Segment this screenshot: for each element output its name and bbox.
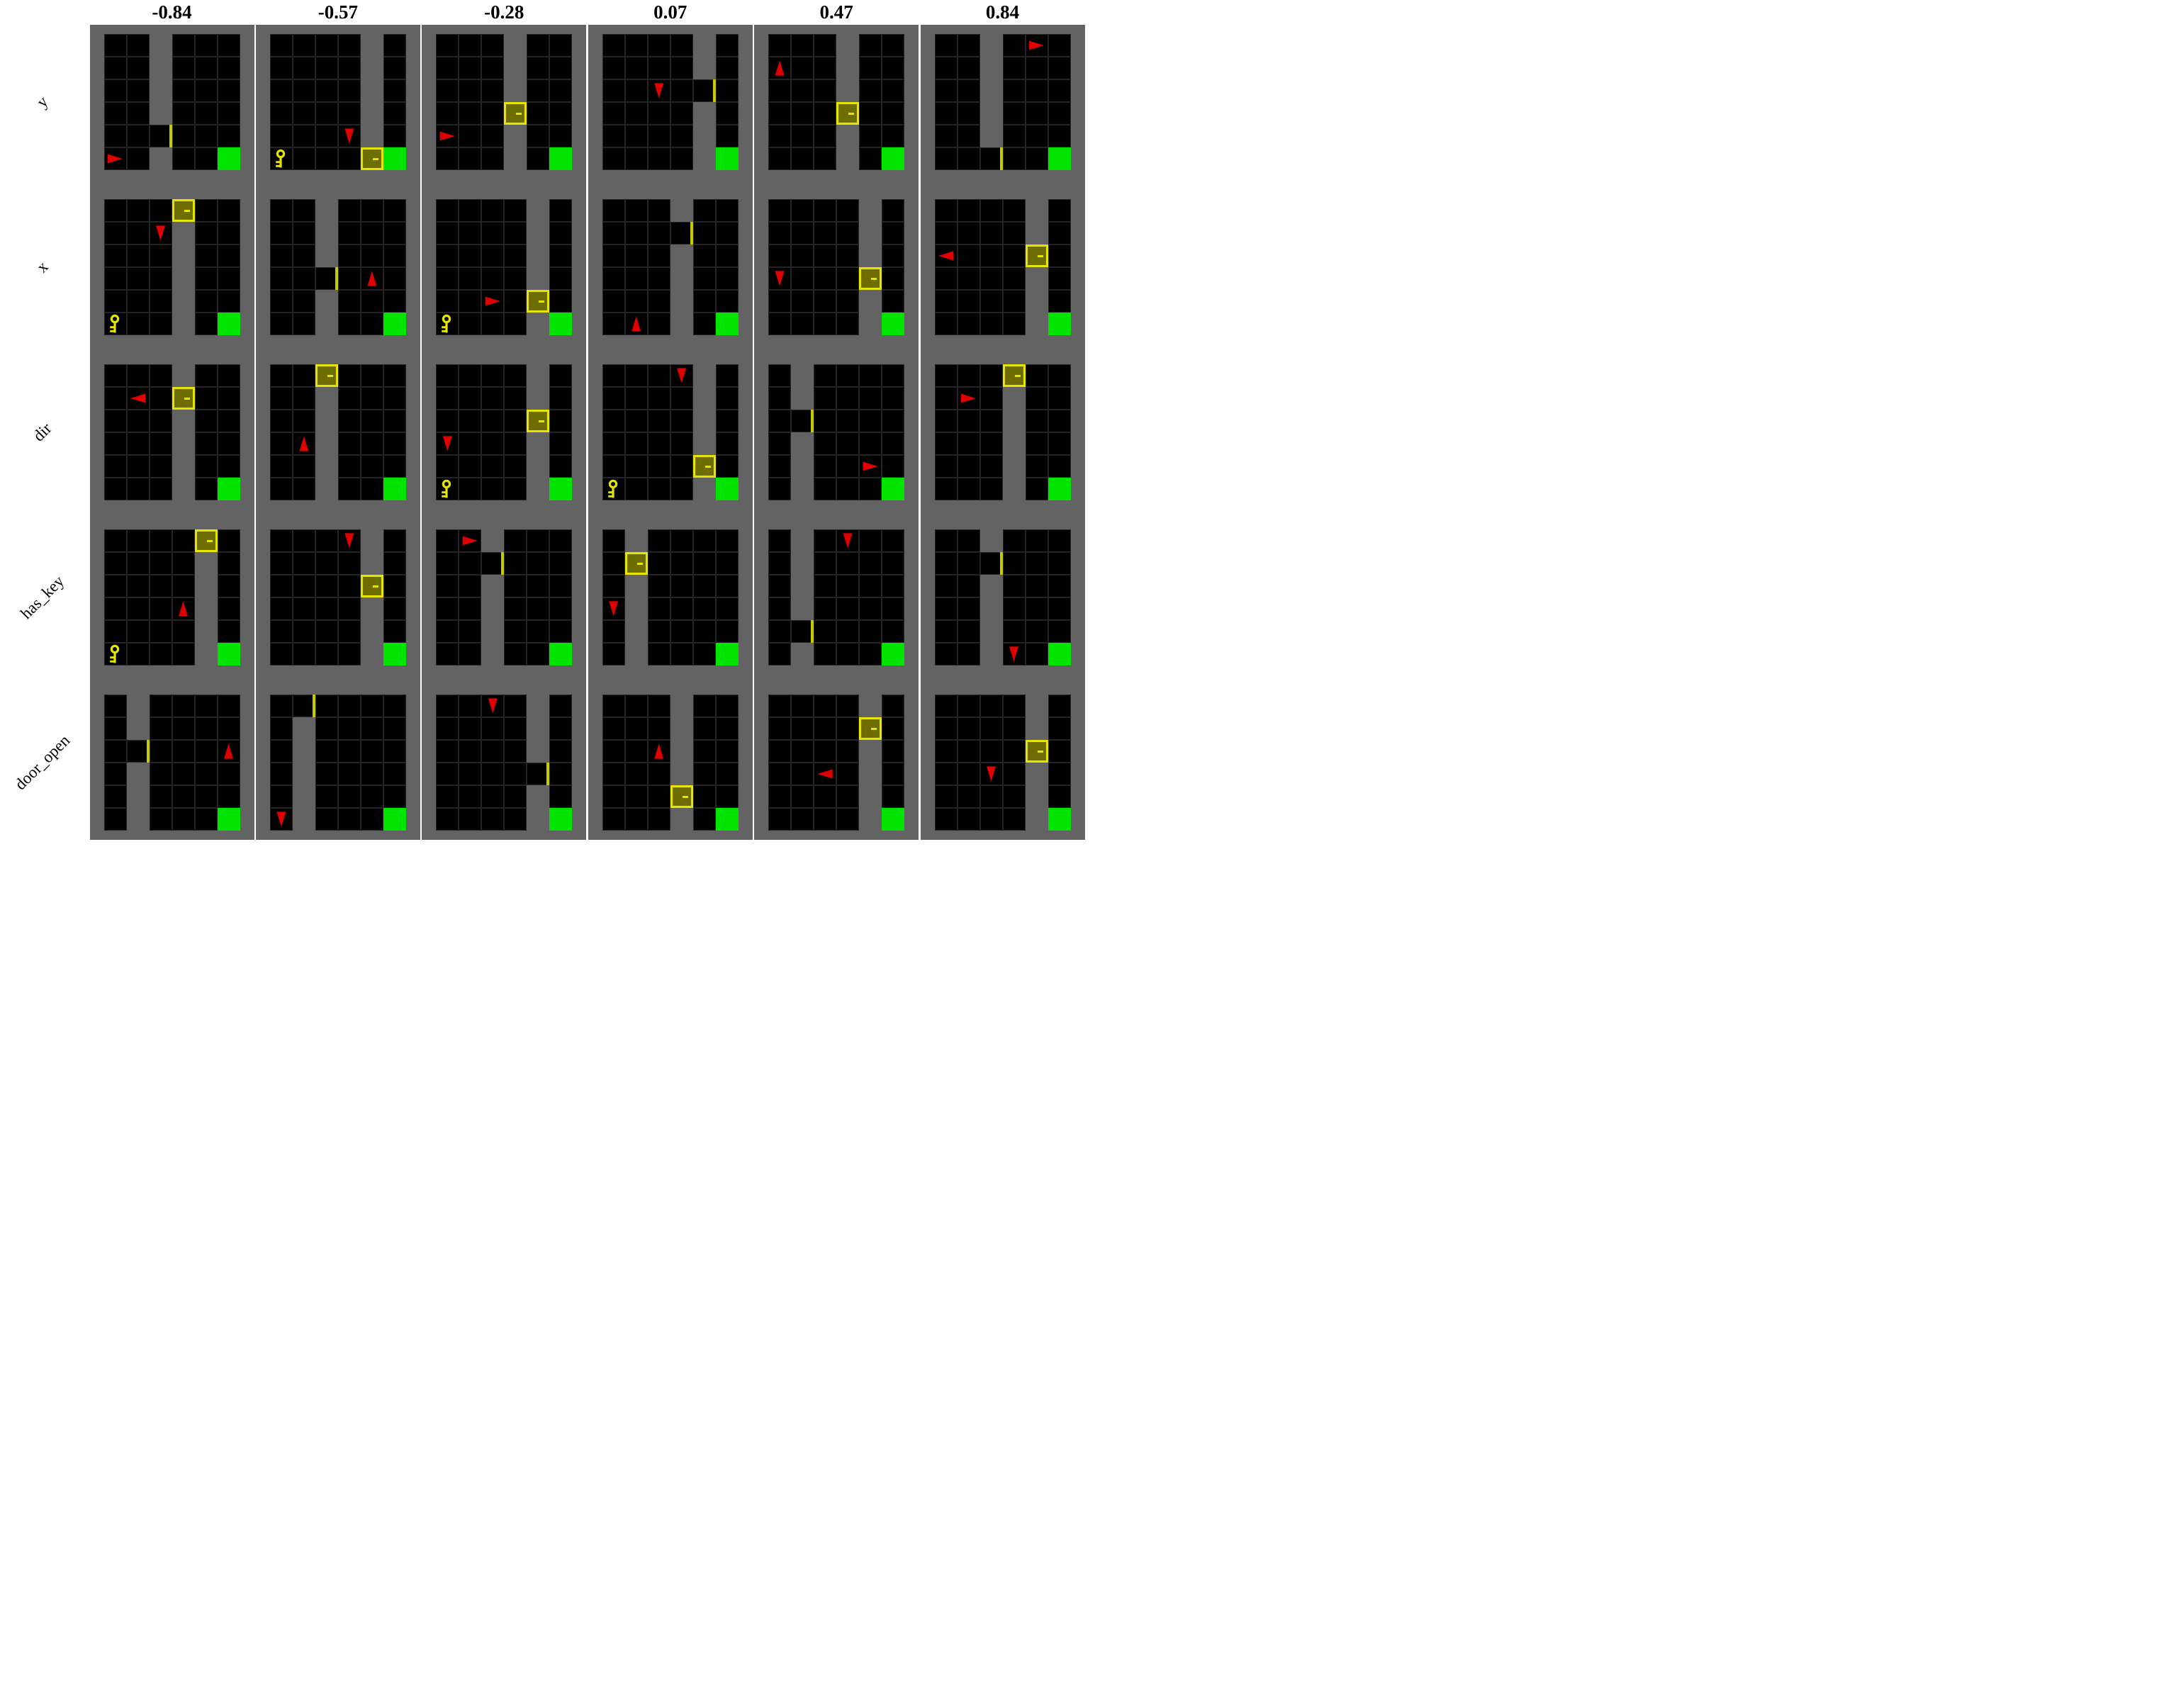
floor-cell [195,125,218,147]
floor-cell [481,478,504,500]
minigrid-env [270,529,406,665]
floor-cell [882,695,904,717]
floor-cell [527,34,549,57]
floor-cell [338,313,361,335]
floor-cell [814,575,836,597]
floor-cell [218,199,240,222]
floor-cell [104,102,127,125]
floor-cell [104,57,127,79]
minigrid-env [935,529,1071,665]
floor-cell [436,763,459,785]
goal-cell [882,478,904,500]
floor-cell [195,222,218,245]
floor-cell [293,102,315,125]
floor-cell [791,79,814,102]
floor-cell [293,387,315,410]
floor-cell [459,740,481,763]
floor-cell [625,763,648,785]
floor-cell [218,290,240,313]
floor-cell [935,125,958,147]
floor-cell [648,808,670,831]
floor-cell [481,125,504,147]
floor-cell [150,763,172,785]
floor-cell [127,57,150,79]
floor-cell [383,267,406,290]
floor-cell [459,57,481,79]
door-closed-icon [315,364,338,387]
goal-cell [383,313,406,335]
floor-cell [315,740,338,763]
floor-cell [270,740,293,763]
floor-cell [958,785,980,808]
floor-cell [602,575,625,597]
col-header-value: 0.47 [754,0,919,24]
floor-cell [338,432,361,455]
floor-cell [315,695,338,717]
floor-cell [270,102,293,125]
floor-cell [1048,763,1071,785]
floor-cell [791,267,814,290]
goal-cell [1048,808,1071,831]
floor-cell [602,432,625,455]
minigrid-env [270,364,406,500]
row-label-y: y [33,93,52,112]
floor-cell [481,57,504,79]
floor-cell [293,643,315,665]
floor-cell [436,199,459,222]
floor-cell [1003,290,1026,313]
door-closed-icon [836,102,859,125]
floor-cell [383,529,406,552]
floor-cell [293,478,315,500]
floor-cell [504,267,527,290]
floor-cell [791,125,814,147]
door-handle-icon [848,113,854,115]
floor-cell [648,529,670,552]
floor-cell [814,267,836,290]
floor-cell [459,643,481,665]
floor-cell [549,364,572,387]
floor-cell [549,125,572,147]
floor-cell [882,432,904,455]
floor-cell [338,222,361,245]
floor-cell [150,432,172,455]
floor-cell [980,364,1003,387]
floor-cell [218,717,240,740]
floor-cell [104,387,127,410]
floor-cell [504,785,527,808]
floor-cell [172,125,195,147]
door-handle-icon [871,278,877,280]
floor-cell [1003,740,1026,763]
floor-cell [693,552,716,575]
floor-cell [648,620,670,643]
floor-cell [670,387,693,410]
floor-cell [504,245,527,267]
goal-cell [383,147,406,170]
floor-cell [1048,290,1071,313]
floor-cell [602,695,625,717]
floor-cell [459,267,481,290]
floor-cell [338,34,361,57]
floor-cell [791,785,814,808]
floor-cell [1003,199,1026,222]
goal-cell [383,808,406,831]
floor-cell [814,102,836,125]
floor-cell [127,245,150,267]
floor-cell [436,552,459,575]
floor-cell [1026,147,1048,170]
floor-cell [549,245,572,267]
floor-cell [361,785,383,808]
floor-cell [814,529,836,552]
floor-cell [958,529,980,552]
floor-cell [958,34,980,57]
floor-cell [935,79,958,102]
floor-cell [648,57,670,79]
floor-cell [602,125,625,147]
floor-cell [648,34,670,57]
floor-cell [602,717,625,740]
floor-cell [935,575,958,597]
floor-cell [602,79,625,102]
floor-cell [1048,455,1071,478]
floor-cell [814,410,836,432]
door-closed-icon [625,552,648,575]
floor-cell [218,34,240,57]
floor-cell [218,695,240,717]
floor-cell [549,410,572,432]
floor-cell [693,643,716,665]
floor-cell [270,199,293,222]
floor-cell [625,432,648,455]
floor-cell [481,364,504,387]
floor-cell [693,597,716,620]
floor-cell [195,290,218,313]
floor-cell [383,387,406,410]
floor-cell [625,290,648,313]
row-label-has_key: has_key [17,572,68,623]
col-header-value: -0.84 [90,0,254,24]
floor-cell [150,387,172,410]
floor-cell [293,620,315,643]
floor-cell [150,364,172,387]
floor-cell [481,717,504,740]
floor-cell [768,597,791,620]
floor-cell [195,432,218,455]
floor-cell [195,313,218,335]
door-closed-icon [195,529,218,552]
floor-cell [1048,267,1071,290]
floor-cell [768,478,791,500]
floor-cell [836,597,859,620]
floor-cell [958,643,980,665]
floor-cell [218,125,240,147]
floor-cell [459,199,481,222]
floor-cell [104,529,127,552]
key-icon [440,479,453,499]
floor-cell [958,57,980,79]
floor-cell [648,763,670,785]
floor-cell [716,57,739,79]
floor-cell [716,717,739,740]
goal-cell [218,808,240,831]
floor-cell [127,267,150,290]
floor-cell [195,455,218,478]
floor-cell [195,57,218,79]
floor-cell [315,57,338,79]
floor-cell [670,147,693,170]
floor-cell [338,387,361,410]
floor-cell [172,763,195,785]
floor-cell [935,267,958,290]
floor-cell [836,432,859,455]
floor-cell [436,643,459,665]
goal-cell [882,808,904,831]
floor-cell [436,785,459,808]
floor-cell [218,597,240,620]
door-handle-icon [871,728,877,730]
floor-cell [1003,267,1026,290]
floor-cell [935,57,958,79]
floor-cell [504,199,527,222]
floor-cell [958,552,980,575]
floor-cell [980,199,1003,222]
goal-cell [549,147,572,170]
floor-cell [195,79,218,102]
floor-cell [716,79,739,102]
goal-cell [716,147,739,170]
floor-cell [481,740,504,763]
floor-cell [882,620,904,643]
floor-cell [383,740,406,763]
floor-cell [361,432,383,455]
floor-cell [361,410,383,432]
floor-cell [127,455,150,478]
floor-cell [549,575,572,597]
floor-cell [1048,364,1071,387]
floor-cell [836,763,859,785]
floor-cell [791,199,814,222]
floor-cell [625,102,648,125]
floor-cell [504,763,527,785]
floor-cell [693,529,716,552]
floor-cell [315,125,338,147]
floor-cell [127,313,150,335]
minigrid-env [602,199,739,335]
floor-cell [859,57,882,79]
floor-cell [1048,34,1071,57]
floor-cell [602,34,625,57]
floor-cell [716,290,739,313]
floor-cell [436,387,459,410]
floor-cell [1003,79,1026,102]
minigrid-env [436,34,572,170]
floor-cell [315,529,338,552]
floor-cell [459,808,481,831]
floor-cell [459,717,481,740]
floor-cell [315,717,338,740]
floor-cell [338,102,361,125]
floor-cell [882,552,904,575]
floor-cell [859,597,882,620]
floor-cell [670,643,693,665]
floor-cell [814,717,836,740]
floor-cell [172,808,195,831]
floor-cell [670,102,693,125]
floor-cell [172,695,195,717]
floor-cell [270,643,293,665]
floor-cell [270,529,293,552]
goal-cell [716,313,739,335]
floor-cell [218,575,240,597]
goal-cell [1048,643,1071,665]
floor-cell [127,125,150,147]
floor-cell [935,290,958,313]
door-handle-icon [184,210,190,212]
floor-cell [127,290,150,313]
floor-cell [980,695,1003,717]
goal-cell [882,643,904,665]
floor-cell [361,387,383,410]
goal-cell [383,478,406,500]
floor-cell [814,620,836,643]
floor-cell [625,79,648,102]
floor-cell [195,147,218,170]
floor-cell [195,34,218,57]
floor-cell [293,199,315,222]
floor-cell [436,620,459,643]
floor-cell [625,199,648,222]
floor-cell [270,57,293,79]
floor-cell [648,455,670,478]
floor-cell [1048,432,1071,455]
floor-cell [980,785,1003,808]
floor-cell [527,102,549,125]
minigrid-env [436,529,572,665]
floor-cell [104,290,127,313]
floor-cell [935,717,958,740]
floor-cell [549,267,572,290]
floor-cell [1048,785,1071,808]
floor-cell [980,222,1003,245]
floor-cell [768,695,791,717]
floor-cell [436,808,459,831]
floor-cell [104,808,127,831]
floor-cell [814,313,836,335]
floor-cell [150,740,172,763]
floor-cell [150,410,172,432]
floor-cell [338,267,361,290]
floor-cell [481,34,504,57]
floor-cell [958,125,980,147]
floor-cell [625,34,648,57]
floor-cell [958,410,980,432]
floor-cell [602,410,625,432]
floor-cell [527,643,549,665]
floor-cell [195,695,218,717]
floor-cell [625,245,648,267]
floor-cell [625,364,648,387]
door-closed-icon [693,455,716,478]
goal-cell [716,478,739,500]
floor-cell [958,740,980,763]
row-label-dir: dir [30,420,55,445]
floor-cell [625,410,648,432]
floor-cell [459,245,481,267]
floor-cell [104,455,127,478]
goal-cell [549,478,572,500]
floor-cell [315,575,338,597]
floor-cell [836,717,859,740]
floor-cell [1003,125,1026,147]
floor-cell [882,79,904,102]
floor-cell [625,808,648,831]
floor-cell [625,785,648,808]
floor-cell [104,222,127,245]
floor-cell [625,717,648,740]
floor-cell [814,222,836,245]
floor-cell [882,102,904,125]
floor-cell [602,387,625,410]
floor-cell [127,643,150,665]
floor-cell [625,478,648,500]
floor-cell [716,102,739,125]
floor-cell [481,147,504,170]
floor-cell [958,597,980,620]
goal-cell [383,643,406,665]
floor-cell [195,364,218,387]
floor-cell [361,313,383,335]
floor-cell [859,575,882,597]
floor-cell [361,695,383,717]
floor-cell [814,147,836,170]
floor-cell [1048,102,1071,125]
floor-cell [459,455,481,478]
floor-cell [549,620,572,643]
floor-cell [315,785,338,808]
floor-cell [459,552,481,575]
floor-cell [270,79,293,102]
floor-cell [648,695,670,717]
floor-cell [218,364,240,387]
floor-cell [935,808,958,831]
floor-cell [293,455,315,478]
key-icon [108,314,121,334]
floor-cell [693,695,716,717]
floor-cell [293,364,315,387]
floor-cell [504,529,527,552]
floor-cell [527,57,549,79]
floor-cell [625,57,648,79]
floor-cell [814,740,836,763]
floor-cell [338,147,361,170]
floor-cell [648,643,670,665]
floor-cell [270,575,293,597]
floor-cell [935,364,958,387]
floor-cell [549,597,572,620]
floor-cell [648,199,670,222]
floor-cell [935,740,958,763]
floor-cell [383,79,406,102]
goal-cell [1048,147,1071,170]
floor-cell [436,597,459,620]
floor-cell [361,455,383,478]
floor-cell [648,552,670,575]
floor-cell [383,57,406,79]
floor-cell [716,552,739,575]
floor-cell [768,529,791,552]
